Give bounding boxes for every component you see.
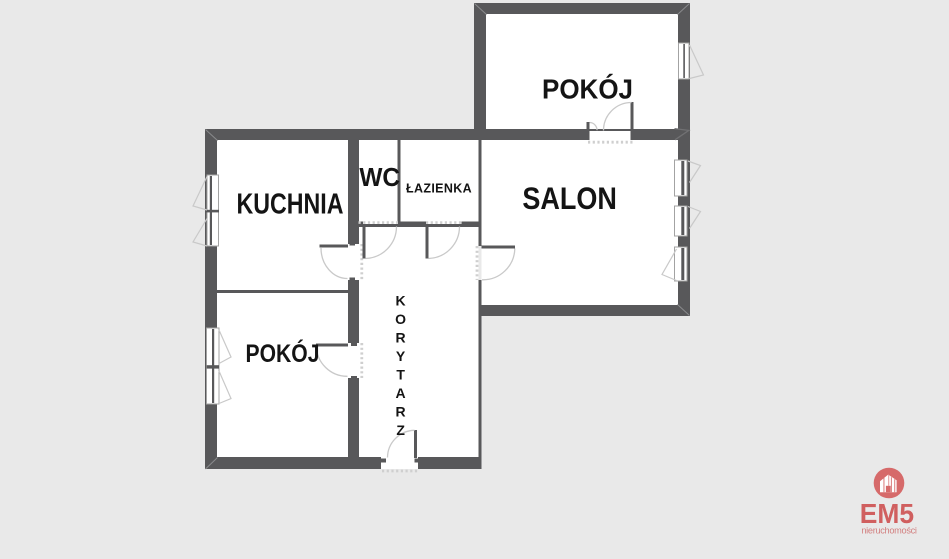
svg-text:Y: Y: [396, 348, 406, 364]
svg-text:O: O: [395, 311, 406, 327]
svg-text:POKÓJ: POKÓJ: [246, 338, 320, 367]
svg-text:KUCHNIA: KUCHNIA: [237, 187, 344, 220]
svg-text:WC: WC: [359, 163, 400, 192]
svg-text:R: R: [396, 403, 406, 419]
svg-text:nieruchomości: nieruchomości: [861, 526, 917, 536]
svg-text:ŁAZIENKA: ŁAZIENKA: [406, 182, 472, 196]
svg-text:SALON: SALON: [522, 181, 617, 216]
svg-text:T: T: [396, 366, 405, 382]
svg-text:Z: Z: [396, 422, 405, 438]
svg-text:K: K: [396, 292, 406, 308]
svg-text:POKÓJ: POKÓJ: [542, 73, 633, 105]
svg-text:R: R: [396, 329, 406, 345]
svg-text:A: A: [396, 385, 406, 401]
